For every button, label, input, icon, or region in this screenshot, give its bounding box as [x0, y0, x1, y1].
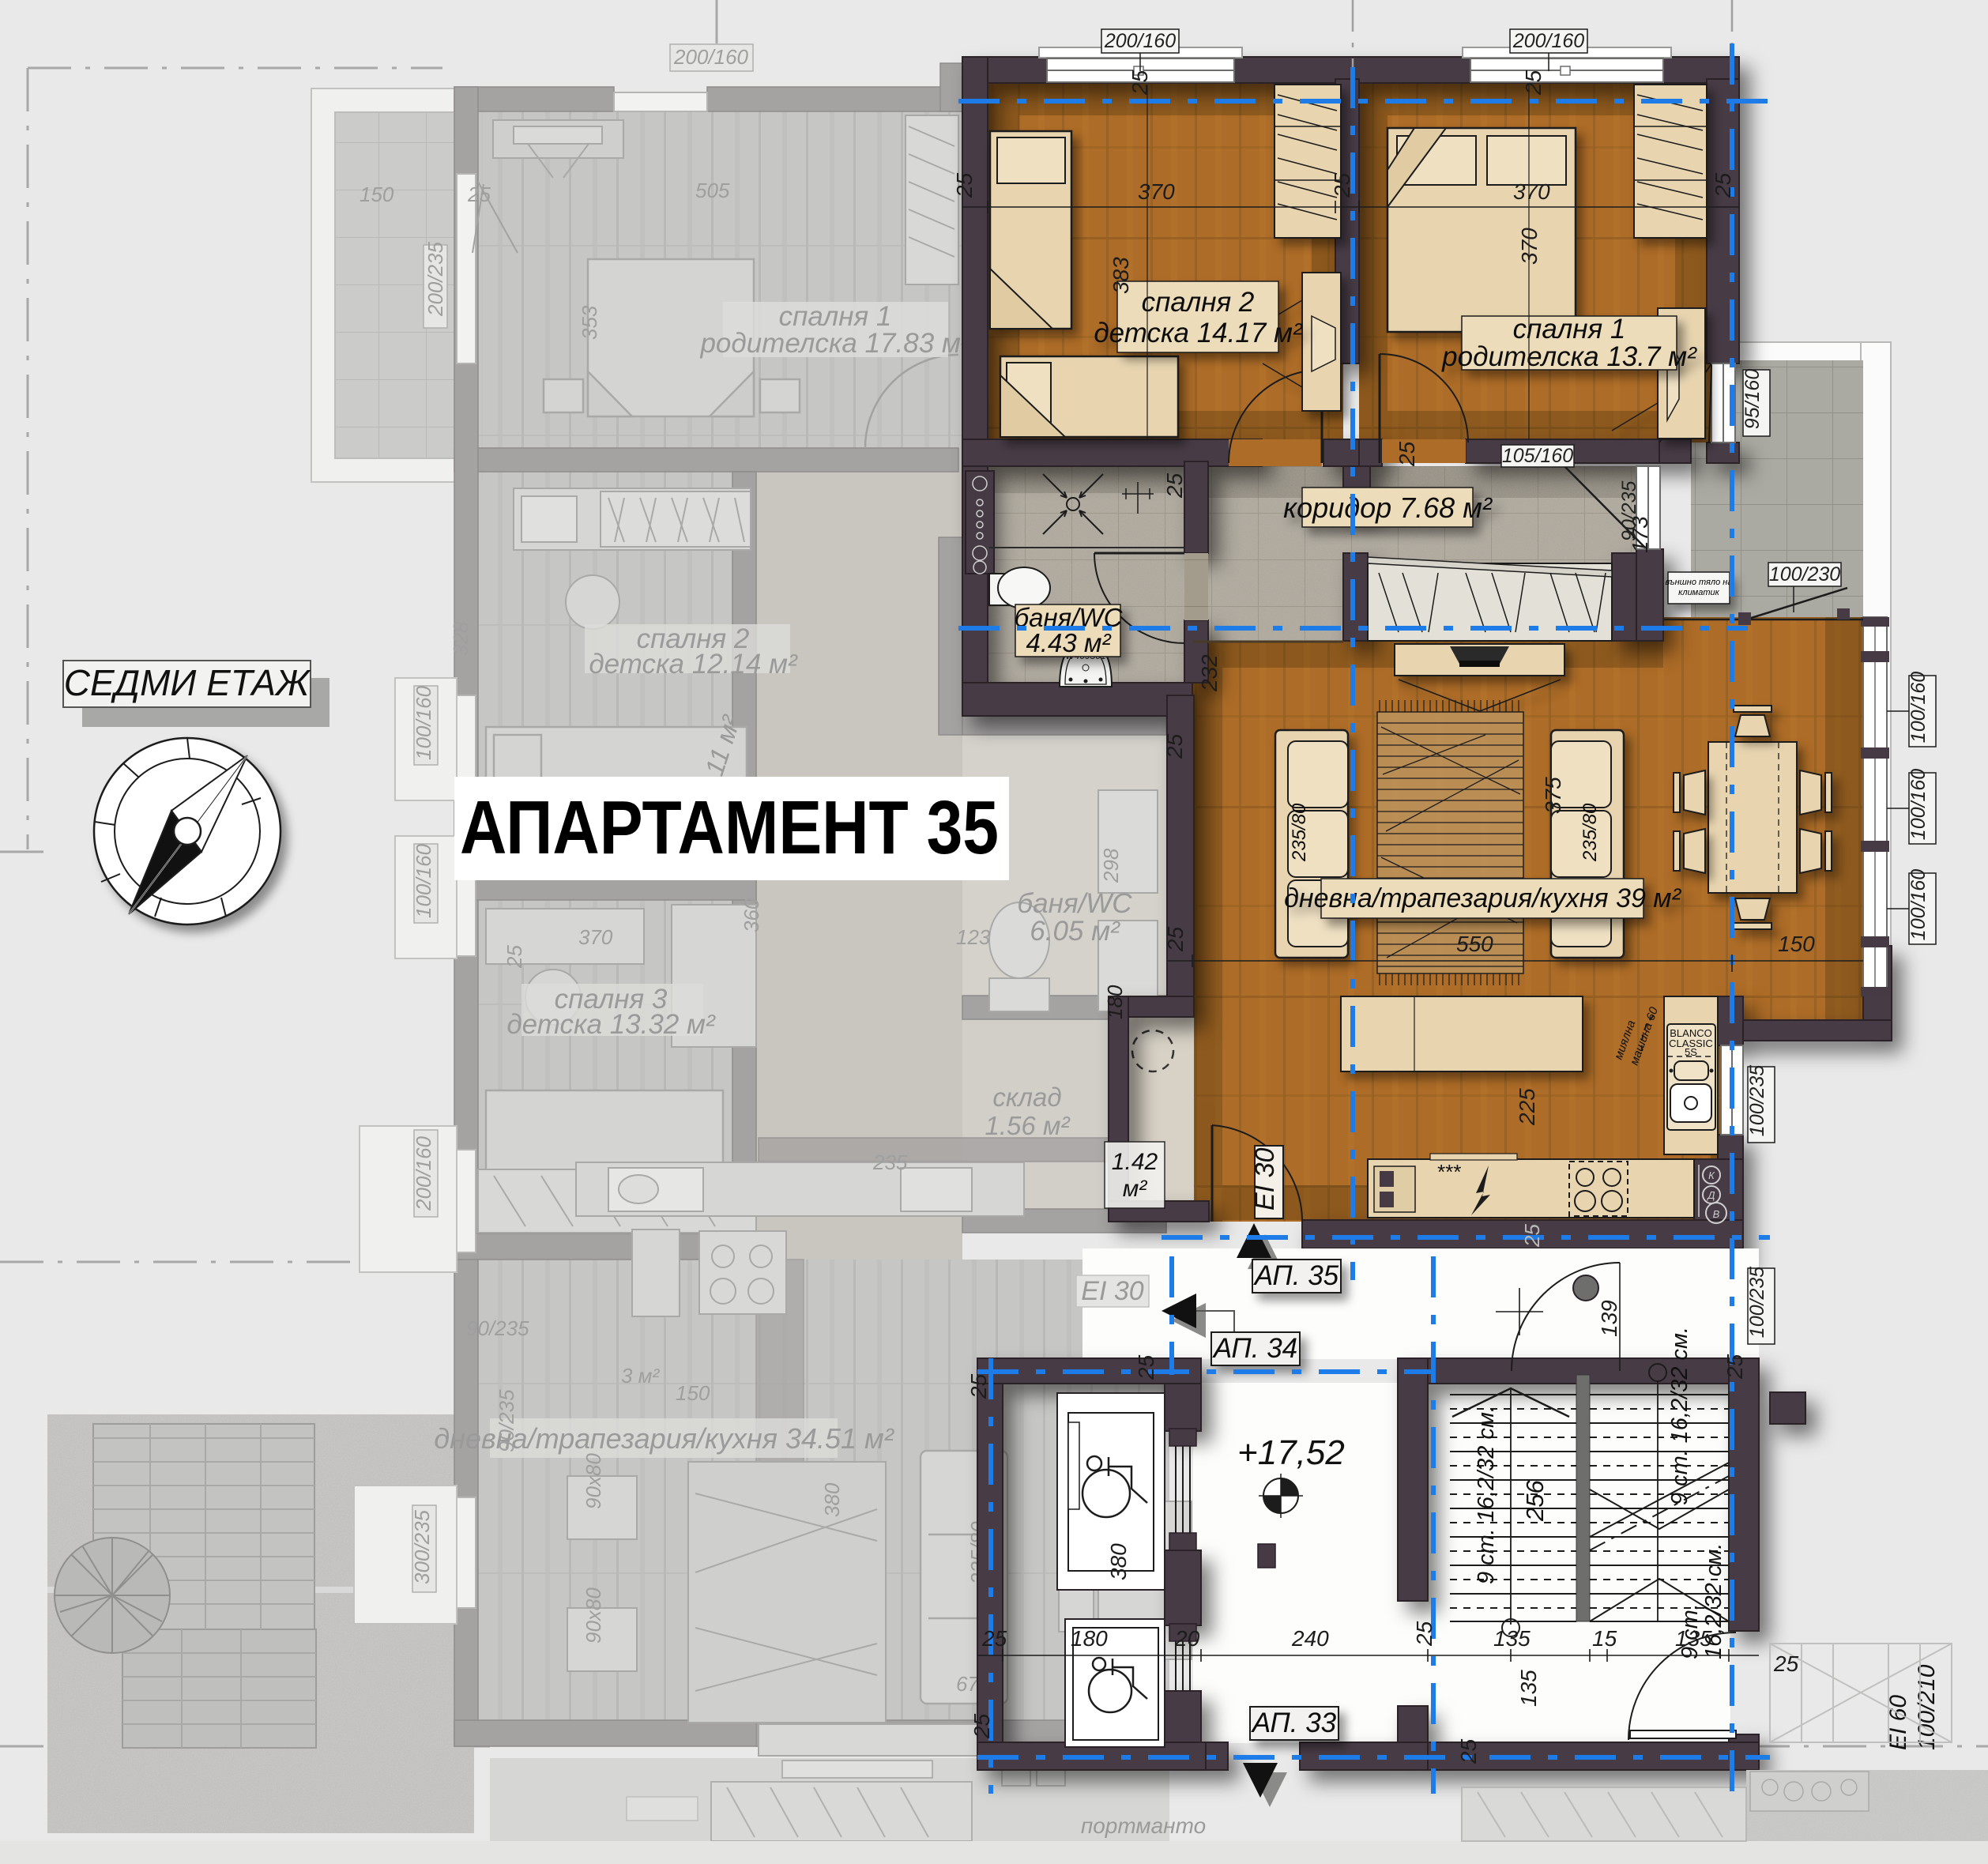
svg-text:25: 25	[467, 183, 491, 206]
svg-text:25: 25	[1330, 172, 1354, 198]
svg-text:150: 150	[1778, 932, 1815, 956]
svg-text:180: 180	[1103, 985, 1127, 1019]
svg-text:9 ст. 16,2/32 см.: 9 ст. 16,2/32 см.	[1474, 1406, 1499, 1584]
svg-text:380: 380	[820, 1482, 844, 1517]
svg-text:EI 30: EI 30	[1250, 1148, 1280, 1211]
svg-text:4.43 м²: 4.43 м²	[1026, 628, 1111, 657]
svg-text:баня/WC: баня/WC	[1017, 888, 1132, 919]
svg-text:детска 13.32 м²: детска 13.32 м²	[506, 1009, 716, 1040]
svg-text:328: 328	[449, 621, 473, 656]
svg-text:АП. 33: АП. 33	[1251, 1708, 1337, 1738]
svg-text:353: 353	[578, 305, 601, 340]
svg-text:15: 15	[1592, 1626, 1617, 1651]
svg-text:детска 14.17 м²: детска 14.17 м²	[1094, 318, 1303, 348]
svg-text:100/160: 100/160	[1907, 869, 1930, 940]
svg-text:200/160: 200/160	[1104, 30, 1176, 52]
svg-text:90x80: 90x80	[582, 1587, 605, 1644]
svg-text:К: К	[1708, 1169, 1715, 1181]
svg-text:95/160: 95/160	[1741, 369, 1764, 430]
svg-text:100/235: 100/235	[1746, 1267, 1768, 1338]
svg-text:375: 375	[1541, 777, 1565, 814]
svg-text:25: 25	[1521, 70, 1546, 96]
svg-text:90x80: 90x80	[582, 1453, 605, 1509]
svg-text:спалня 2: спалня 2	[1142, 287, 1255, 318]
svg-text:100/160: 100/160	[412, 685, 435, 760]
svg-text:180: 180	[1071, 1626, 1108, 1651]
svg-text:коридор 7.68 м²: коридор 7.68 м²	[1283, 491, 1493, 524]
svg-text:298: 298	[1099, 848, 1123, 883]
svg-text:100/160: 100/160	[1907, 672, 1930, 743]
svg-text:105/160: 105/160	[1502, 445, 1573, 467]
svg-text:3 м²: 3 м²	[621, 1364, 661, 1388]
svg-text:25: 25	[970, 1713, 994, 1739]
svg-text:25: 25	[966, 1373, 991, 1399]
svg-text:25: 25	[1520, 1224, 1544, 1248]
svg-text:АПАРТАМЕНТ 35: АПАРТАМЕНТ 35	[460, 785, 999, 870]
svg-text:135: 135	[1516, 1670, 1541, 1707]
svg-text:200/160: 200/160	[412, 1135, 435, 1211]
svg-text:25: 25	[1162, 473, 1187, 499]
svg-text:25: 25	[981, 1626, 1007, 1651]
svg-text:климатик: климатик	[1678, 588, 1719, 597]
svg-text:детска 12.14 м²: детска 12.14 м²	[589, 649, 798, 680]
svg-text:EI 30: EI 30	[1081, 1276, 1143, 1306]
svg-text:256: 256	[1521, 1480, 1549, 1522]
svg-text:20: 20	[1174, 1626, 1200, 1651]
svg-text:90/235: 90/235	[1618, 480, 1640, 541]
svg-text:550: 550	[1456, 932, 1493, 956]
svg-text:+17,52: +17,52	[1237, 1433, 1345, 1472]
svg-text:200/160: 200/160	[1512, 30, 1584, 52]
svg-text:25: 25	[1395, 441, 1419, 467]
svg-text:25: 25	[1412, 1621, 1436, 1647]
svg-text:25: 25	[952, 172, 977, 198]
svg-text:5S: 5S	[1685, 1046, 1697, 1058]
svg-text:90/235: 90/235	[495, 1389, 518, 1452]
svg-text:1.42: 1.42	[1112, 1149, 1158, 1175]
svg-text:135: 135	[1675, 1626, 1712, 1651]
svg-text:150: 150	[676, 1381, 710, 1405]
svg-text:1.56 м²: 1.56 м²	[985, 1111, 1070, 1140]
svg-text:25: 25	[503, 945, 526, 969]
svg-text:90/235: 90/235	[466, 1316, 529, 1340]
svg-text:6.05 м²: 6.05 м²	[1030, 916, 1120, 947]
svg-text:АП. 34: АП. 34	[1212, 1333, 1297, 1364]
svg-text:25: 25	[1163, 926, 1188, 952]
svg-text:спалня 1: спалня 1	[1513, 314, 1626, 345]
svg-text:м²: м²	[1123, 1176, 1148, 1202]
svg-text:АП. 35: АП. 35	[1253, 1260, 1339, 1291]
svg-text:външно тяло на: външно тяло на	[1666, 578, 1733, 587]
svg-text:200/160: 200/160	[673, 45, 749, 69]
svg-text:25: 25	[1134, 1354, 1158, 1380]
svg-text:100/235: 100/235	[1746, 1065, 1768, 1136]
svg-text:25: 25	[1773, 1651, 1799, 1676]
svg-text:100/160: 100/160	[412, 843, 435, 918]
svg-text:370: 370	[578, 925, 613, 949]
svg-text:склад: склад	[992, 1083, 1061, 1112]
svg-text:383: 383	[1109, 257, 1133, 294]
svg-text:25: 25	[1128, 70, 1152, 96]
svg-text:В: В	[1713, 1208, 1720, 1220]
svg-text:25: 25	[1456, 1738, 1481, 1764]
svg-text:дневна/трапезария/кухня 39 м²: дневна/трапезария/кухня 39 м²	[1284, 883, 1682, 913]
svg-text:380: 380	[1106, 1543, 1131, 1580]
svg-text:25: 25	[1723, 1354, 1747, 1380]
svg-text:родителска 13.7 м²: родителска 13.7 м²	[1441, 341, 1697, 372]
svg-text:139: 139	[1597, 1300, 1621, 1337]
svg-text:300/235: 300/235	[410, 1509, 434, 1584]
svg-text:***: ***	[1436, 1160, 1461, 1184]
svg-text:240: 240	[1291, 1626, 1329, 1651]
svg-text:505: 505	[695, 179, 730, 202]
svg-text:Д: Д	[1706, 1189, 1715, 1201]
svg-text:232: 232	[1197, 654, 1222, 692]
svg-text:СЕДМИ ЕТАЖ: СЕДМИ ЕТАЖ	[64, 662, 311, 703]
svg-text:100/160: 100/160	[1907, 769, 1930, 840]
svg-text:135: 135	[1493, 1626, 1531, 1651]
svg-text:123: 123	[956, 925, 991, 949]
svg-text:портманто: портманто	[1081, 1813, 1206, 1838]
svg-text:370: 370	[1513, 179, 1550, 204]
svg-text:9 ст. 16,2/32 см.: 9 ст. 16,2/32 см.	[1667, 1327, 1692, 1505]
svg-text:225: 225	[1515, 1088, 1539, 1126]
svg-text:150: 150	[360, 183, 394, 206]
svg-text:235: 235	[872, 1150, 908, 1174]
svg-text:родителска 17.83 м²: родителска 17.83 м²	[699, 328, 970, 359]
svg-text:25: 25	[1711, 172, 1735, 198]
svg-text:235/80: 235/80	[1579, 803, 1601, 862]
svg-text:25: 25	[1162, 733, 1187, 759]
svg-text:100/230: 100/230	[1769, 563, 1840, 586]
svg-text:200/235: 200/235	[424, 241, 447, 317]
svg-text:370: 370	[1138, 179, 1175, 204]
svg-text:360: 360	[740, 898, 763, 932]
svg-text:235/80: 235/80	[1289, 803, 1310, 862]
svg-text:100/210: 100/210	[1914, 1664, 1940, 1750]
